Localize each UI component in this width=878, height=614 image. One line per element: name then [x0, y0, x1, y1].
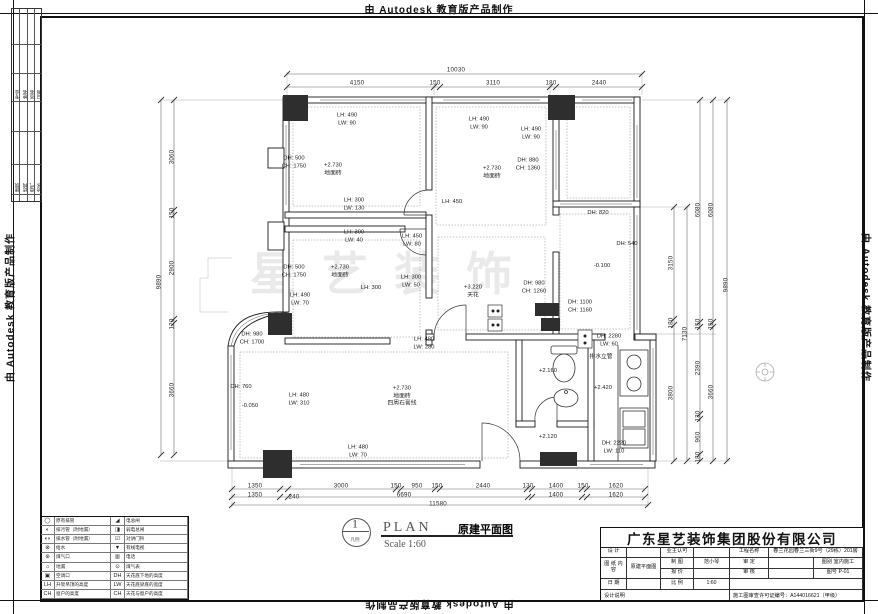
legend-label: 电总闸	[125, 517, 188, 526]
title-block: 广东星艺装饰集团股份有限公司 设 计 业主认可 工程名称 春兰花园春兰三街9号（…	[600, 527, 864, 601]
date-value	[627, 579, 661, 590]
drawing-sheet: { "banner": { "text": "由 Autodesk 教育版产品制…	[0, 0, 878, 614]
scale-label: 比 例	[661, 579, 694, 590]
quote-label: 报 价	[661, 569, 694, 580]
permit-number: 施工图审查许可证编号：A144016621（甲级）	[730, 590, 863, 600]
legend-symbol: ◢	[111, 517, 125, 526]
legend-symbol: ◯	[41, 517, 55, 526]
legend-label: 煤气表	[125, 563, 188, 572]
legend-symbol: ▥	[111, 553, 125, 562]
design-value	[627, 547, 661, 558]
number-cell: 图号 P-01	[814, 569, 863, 580]
legend-label: 煤气口	[55, 553, 111, 562]
plan-number-sub: 凡例	[351, 537, 360, 543]
legend-label: 天花与窗户的高度	[125, 590, 188, 599]
project-label: 工程名称	[730, 547, 769, 558]
legend-label: 空调口	[55, 572, 111, 581]
legend-label: 有线电视	[125, 544, 188, 553]
company-name: 广东星艺装饰集团股份有限公司	[601, 528, 863, 548]
legend-label: 原有排管	[55, 517, 111, 526]
legend-label: 地漏	[55, 563, 111, 572]
review-value	[769, 569, 814, 580]
legend-symbol: ◐	[41, 526, 55, 535]
category-cell: 图别 室内施工	[814, 558, 863, 569]
dimension-ticks	[158, 71, 730, 508]
legend-label: 排污管（附地漏）	[55, 526, 111, 535]
legend-label: 弱电总闸	[125, 526, 188, 535]
legend-symbol: LH	[41, 581, 55, 590]
notes-label: 设计说明	[601, 590, 730, 600]
legend-symbol: ⌂	[41, 563, 55, 572]
legend-symbol: ⊗	[41, 544, 55, 553]
legend-symbol: DH	[111, 572, 125, 581]
plan-word: PLAN	[383, 520, 432, 536]
legend-label: 排水管（附地漏）	[55, 535, 111, 544]
plan-title-underline	[381, 535, 513, 537]
legend-symbol: ◖◗	[41, 535, 55, 544]
sheet-value: 原建平面图	[627, 558, 661, 580]
legend-symbol: ◨	[111, 526, 125, 535]
legend-table: ◯原有排管◢电总闸◐排污管（附地漏）◨弱电总闸◖◗排水管（附地漏）☑对讲门铃⊗给…	[40, 516, 189, 600]
legend-label: 升架吊顶的高度	[55, 581, 111, 590]
legend-symbol: ☑	[111, 535, 125, 544]
draft-value: 范小琴	[694, 558, 730, 569]
scale-value: 1:60	[694, 579, 730, 590]
project-value: 春兰花园春兰三街9号（29栋）201房	[769, 547, 863, 558]
north-emblem	[756, 363, 774, 381]
owner-label: 业主认可	[661, 547, 694, 558]
legend-label: 电话	[125, 553, 188, 562]
design-label: 设 计	[601, 547, 627, 558]
legend-symbol: CH	[41, 590, 55, 599]
owner-value	[694, 547, 730, 558]
approve-label: 审 定	[730, 558, 769, 569]
quote-value	[694, 569, 730, 580]
draft-label: 制 图	[661, 558, 694, 569]
legend-symbol: ⊛	[41, 553, 55, 562]
legend-label: 窗户的高度	[55, 590, 111, 599]
review-label: 审 核	[730, 569, 769, 580]
legend-symbol: LW	[111, 581, 125, 590]
spare-cell	[730, 579, 863, 590]
legend-symbol: ▣	[41, 572, 55, 581]
date-label: 日 期	[601, 579, 627, 590]
plan-scale: Scale 1:60	[384, 539, 426, 550]
plan-number: 1	[352, 517, 358, 532]
legend-label: 天花底下地的高度	[125, 572, 188, 581]
legend-label: 对讲门铃	[125, 535, 188, 544]
legend-symbol: CH	[111, 590, 125, 599]
legend-label: 给水	[55, 544, 111, 553]
approve-value	[769, 558, 814, 569]
sheet-label: 图 纸 内 容	[601, 558, 627, 580]
legend-symbol: ▼	[111, 544, 125, 553]
legend-label: 天花底梁底的宽度	[125, 581, 188, 590]
legend-symbol: ⊙	[111, 563, 125, 572]
